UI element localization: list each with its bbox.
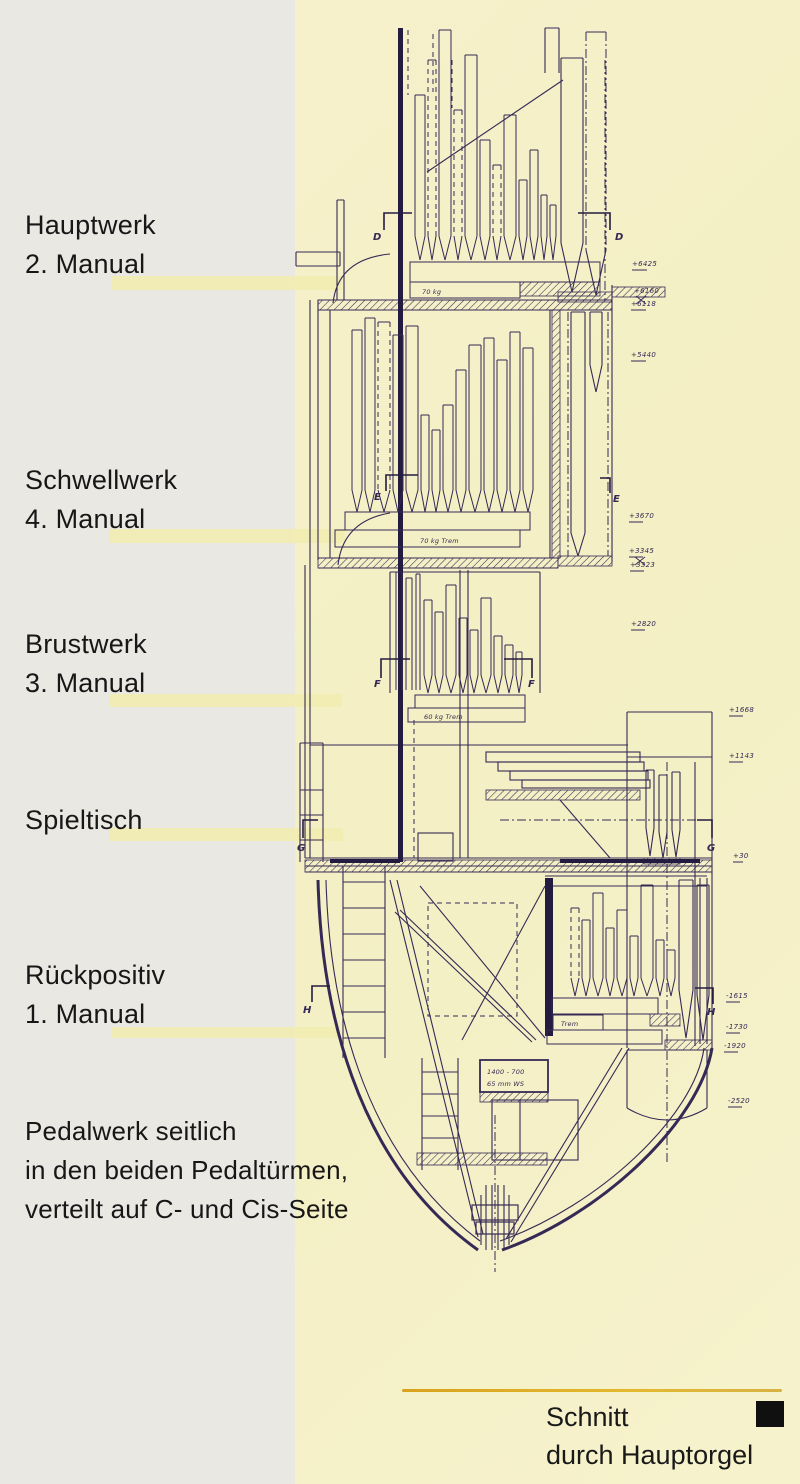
section-letter-e: E xyxy=(613,494,620,505)
elevation-label: +3323 xyxy=(630,561,655,569)
elevation-label: +1668 xyxy=(729,706,754,714)
section-letter-h: H xyxy=(707,1007,716,1018)
book-page: Hauptwerk 2. Manual Schwellwerk 4. Manua… xyxy=(0,0,800,1484)
elevation-label: +6425 xyxy=(632,260,657,268)
chest-label-rueckpositiv: Trem xyxy=(561,1020,578,1028)
elevation-ticks xyxy=(629,270,743,1107)
wind-pressure-label: 65 mm WS xyxy=(487,1080,524,1088)
caption-line: durch Hauptorgel xyxy=(546,1436,753,1474)
elevation-label: +1143 xyxy=(729,752,754,760)
elevation-label: +3345 xyxy=(629,547,654,555)
section-letter-g: G xyxy=(297,843,305,854)
hauptwerk-pipes xyxy=(410,30,600,298)
chest-label-schwellwerk: 70 kg Trem xyxy=(420,537,459,545)
section-letter-f: F xyxy=(528,679,535,690)
elevation-label: +30 xyxy=(733,852,749,860)
organ-section-drawing: D D E E F F G G H H 70 kg 70 kg Trem 60 … xyxy=(0,0,800,1484)
caption-line: Schnitt xyxy=(546,1398,753,1436)
elevation-label: +6160 xyxy=(634,287,659,295)
section-letter-g: G xyxy=(707,843,715,854)
hatched-members xyxy=(305,282,712,1165)
bellows-size-label: 1400 - 700 xyxy=(487,1068,524,1076)
section-letter-d: D xyxy=(373,232,381,243)
elevation-label: +2820 xyxy=(631,620,656,628)
chest-label-brustwerk: 60 kg Trem xyxy=(424,713,463,721)
elevation-label: +5440 xyxy=(631,351,656,359)
elevation-label: -2520 xyxy=(728,1097,750,1105)
elevation-label: +6118 xyxy=(631,300,656,308)
elevation-label: -1730 xyxy=(726,1023,748,1031)
elevation-label: -1615 xyxy=(726,992,748,1000)
gold-divider-rule xyxy=(402,1389,782,1392)
end-of-article-square xyxy=(756,1401,784,1427)
elevation-marks: +6425 +6160 +6118 +5440 +3670 +3345 +332… xyxy=(629,260,754,1107)
chest-label-hauptwerk: 70 kg xyxy=(422,288,441,296)
section-letter-f: F xyxy=(374,679,381,690)
section-letter-e: E xyxy=(374,492,381,503)
section-letter-h: H xyxy=(303,1005,312,1016)
elevation-label: +3670 xyxy=(629,512,654,520)
figure-caption: Schnitt durch Hauptorgel xyxy=(546,1398,753,1474)
elevation-label: -1920 xyxy=(724,1042,746,1050)
main-mast xyxy=(398,28,403,862)
facade-and-pedal-pipes xyxy=(561,32,709,1040)
schwellwerk-pipes xyxy=(335,318,533,547)
section-letter-d: D xyxy=(615,232,623,243)
